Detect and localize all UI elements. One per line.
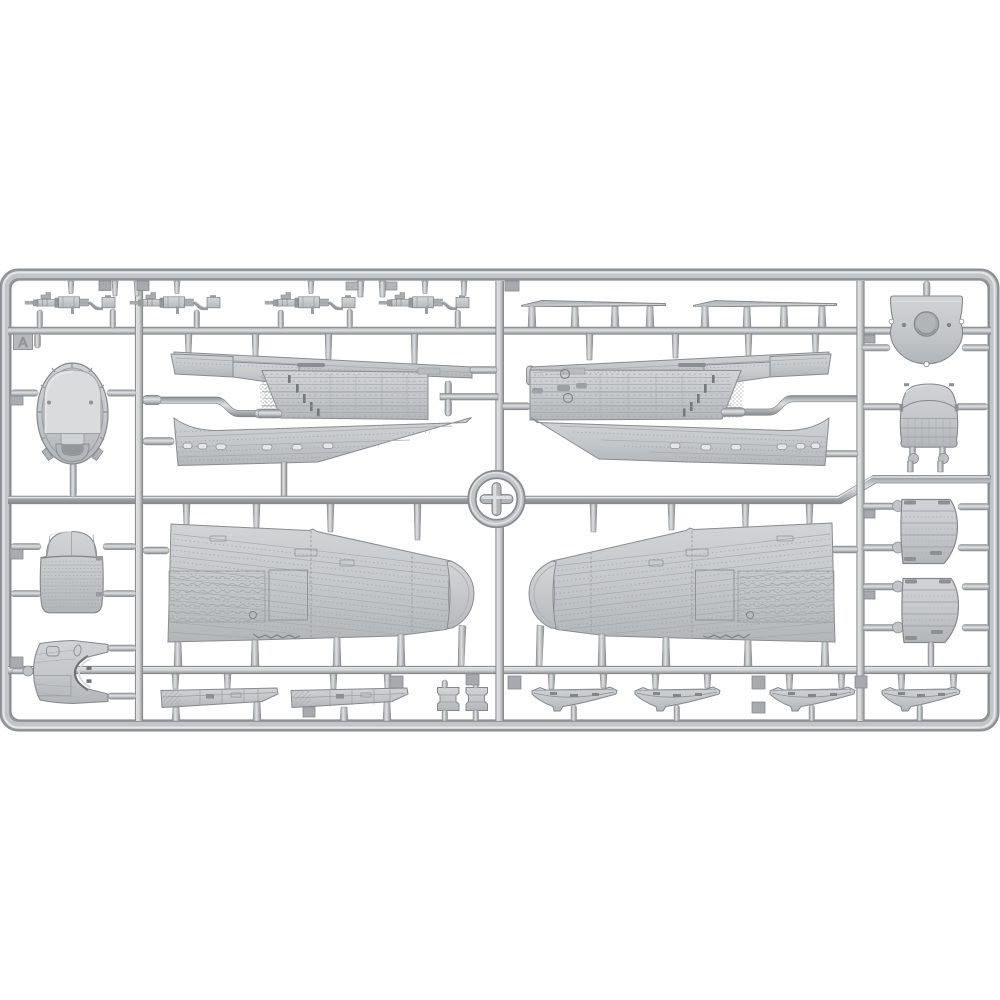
svg-text:A: A [18, 335, 27, 350]
